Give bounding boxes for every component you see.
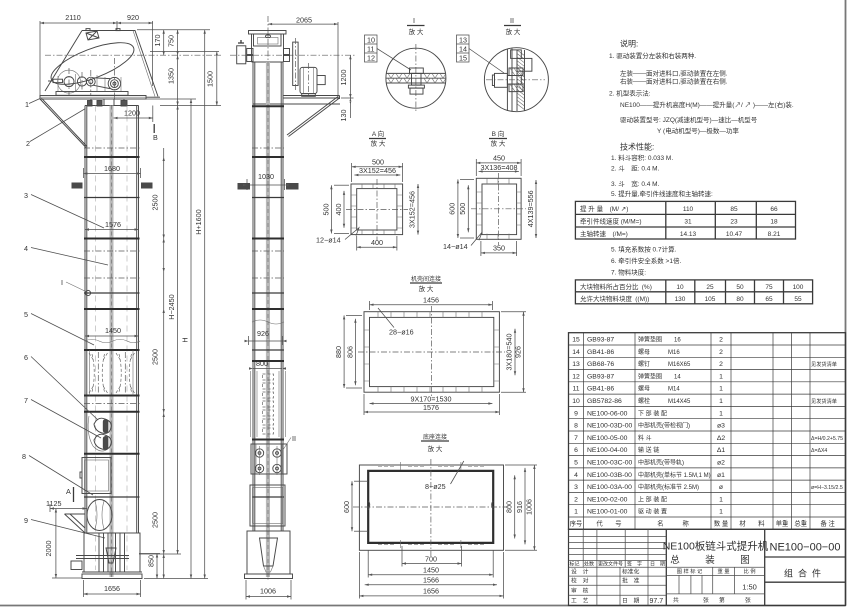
svg-text:Δ2: Δ2 [717,435,726,442]
svg-text:中部机壳(单标节 1.5M,1 M): 中部机壳(单标节 1.5M,1 M) [638,471,711,479]
svg-text:Δ=H/0.2+5.75: Δ=H/0.2+5.75 [811,436,843,442]
svg-text:11: 11 [367,45,374,54]
svg-text:1: 1 [719,509,723,516]
svg-text:H+1600: H+1600 [194,209,203,234]
svg-text:6: 6 [574,447,578,454]
svg-text:916: 916 [515,501,524,513]
svg-text:1. 驱动装置分左装和右装两种.: 1. 驱动装置分左装和右装两种. [609,51,696,60]
svg-text:NE100−00−00: NE100−00−00 [770,542,841,554]
svg-text:H−2450: H−2450 [167,294,176,319]
svg-text:8: 8 [574,423,578,430]
svg-text:GB41-86: GB41-86 [587,386,614,393]
svg-text:I: I [413,16,415,25]
svg-text:3. 斗 宽: 0.4 M.: 3. 斗 宽: 0.4 M. [611,179,660,188]
svg-text:II: II [292,434,296,443]
svg-text:NE100-03C-00: NE100-03C-00 [587,460,633,467]
svg-text:放 大: 放 大 [506,27,521,36]
svg-text:第: 第 [719,596,725,604]
svg-text:11: 11 [572,386,579,393]
svg-text:技术性能:: 技术性能: [620,142,654,152]
svg-text:1:50: 1:50 [742,583,757,592]
svg-text:总重: 总重 [794,519,807,528]
svg-text:55: 55 [794,296,802,303]
svg-text:左装——面对进料口,驱动装置在左侧.: 左装——面对进料口,驱动装置在左侧. [620,69,728,78]
svg-text:1566: 1566 [423,576,439,585]
svg-text:B 向: B 向 [492,129,505,138]
svg-text:10: 10 [676,284,684,291]
svg-text:张: 张 [745,596,751,604]
svg-text:2: 2 [719,349,723,356]
svg-text:见发货清单: 见发货清单 [811,360,837,368]
svg-text:输 送 链: 输 送 链 [638,446,659,454]
svg-text:NE100-05-00: NE100-05-00 [587,435,628,442]
svg-text:名 称: 名 称 [657,519,689,528]
svg-text:1200: 1200 [339,70,348,86]
svg-text:18: 18 [770,219,778,226]
svg-text:1576: 1576 [105,220,121,229]
svg-text:13: 13 [572,361,580,368]
svg-text:800: 800 [505,501,514,513]
svg-text:1: 1 [574,509,578,516]
svg-text:共: 共 [673,596,679,604]
svg-text:机壳间连接: 机壳间连接 [411,275,441,283]
svg-text:NE100-06-00: NE100-06-00 [587,410,628,417]
svg-text:放 大: 放 大 [428,444,443,453]
svg-text:签 字: 签 字 [627,561,642,568]
svg-text:螺栓 M14X45: 螺栓 M14X45 [638,397,691,405]
svg-text:弹簧垫圈 16: 弹簧垫圈 16 [638,336,681,344]
svg-text:I: I [61,278,63,287]
svg-text:85: 85 [730,206,738,213]
svg-text:25: 25 [706,284,714,291]
svg-text:850: 850 [147,555,156,567]
svg-text:105: 105 [705,296,716,303]
svg-text:926: 926 [257,329,269,338]
svg-text:料 斗: 料 斗 [638,434,652,442]
svg-text:图 样 标 记: 图 样 标 记 [677,567,703,575]
svg-text:97.7: 97.7 [650,598,664,605]
svg-text:3X180=540: 3X180=540 [505,334,514,371]
svg-text:GB5782-86: GB5782-86 [587,398,622,405]
svg-text:2. 斗 距: 0.4 M.: 2. 斗 距: 0.4 M. [611,164,660,172]
svg-text:审 核: 审 核 [571,587,589,595]
svg-text:A: A [66,487,71,496]
svg-text:2: 2 [26,139,30,148]
svg-text:450: 450 [493,154,505,163]
svg-text:5: 5 [574,460,578,467]
svg-text:880: 880 [334,346,343,358]
svg-text:350: 350 [493,244,505,253]
svg-text:6: 6 [24,353,28,362]
svg-text:5. 提升量,牵引件线速度和主轴转速:: 5. 提升量,牵引件线速度和主轴转速: [611,189,713,198]
svg-text:7: 7 [24,396,28,405]
svg-text:工 艺: 工 艺 [571,597,589,605]
svg-text:2: 2 [574,496,578,503]
svg-text:130: 130 [339,110,348,122]
svg-text:序号: 序号 [570,519,583,528]
svg-text:8: 8 [22,452,26,461]
svg-text:130: 130 [675,296,686,303]
svg-text:NE100-03A-00: NE100-03A-00 [587,484,632,491]
svg-text:数 量: 数 量 [714,519,729,528]
svg-text:中部机壳(标准节 2.5M): 中部机壳(标准节 2.5M) [638,483,699,491]
svg-text:1350: 1350 [167,68,176,84]
svg-text:3: 3 [574,484,578,491]
svg-text:B: B [153,133,158,142]
svg-text:400: 400 [371,238,383,247]
svg-text:3: 3 [24,191,28,200]
svg-text:31: 31 [684,219,692,226]
svg-text:1456: 1456 [423,295,439,304]
svg-text:螺钉 M16X65: 螺钉 M16X65 [638,360,691,368]
svg-text:500: 500 [458,203,467,215]
svg-text:14.13: 14.13 [680,231,697,238]
svg-text:1656: 1656 [423,587,439,596]
svg-text:3X152=456: 3X152=456 [408,191,417,228]
svg-text:806: 806 [345,346,354,358]
svg-text:100: 100 [793,284,804,291]
svg-text:5: 5 [24,310,28,319]
svg-text:NE100-04-00: NE100-04-00 [587,447,628,454]
svg-text:66: 66 [770,206,778,213]
svg-text:10: 10 [367,36,375,45]
svg-text:400: 400 [334,204,343,216]
svg-text:NE100-03B-00: NE100-03B-00 [587,472,632,479]
svg-text:7: 7 [574,435,578,442]
svg-text:1450: 1450 [105,326,121,335]
svg-text:重 量: 重 量 [717,567,730,575]
svg-text:ø2: ø2 [717,460,725,467]
svg-text:6. 牵引件安全系数 >1倍.: 6. 牵引件安全系数 >1倍. [611,256,681,265]
svg-text:1: 1 [25,100,29,109]
svg-text:1125: 1125 [46,499,61,508]
svg-text:驱动装置型号: JZQ(减速机型号)—速比—机型号: 驱动装置型号: JZQ(减速机型号)—速比—机型号 [620,115,758,124]
svg-text:14: 14 [572,349,580,356]
svg-text:更改文件号: 更改文件号 [598,561,623,568]
svg-text:代 号: 代 号 [596,519,621,528]
svg-text:700: 700 [425,554,437,563]
svg-text:NE100-02-00: NE100-02-00 [587,496,628,503]
svg-text:中部机壳(带导轨): 中部机壳(带导轨) [638,459,684,467]
svg-text:日 期: 日 期 [622,598,640,605]
svg-text:II: II [510,16,514,25]
svg-text:日 期: 日 期 [650,562,665,568]
svg-text:NE100板链斗式提升机: NE100板链斗式提升机 [663,540,769,553]
svg-text:ø1: ø1 [717,472,725,479]
svg-text:8−ø25: 8−ø25 [425,482,446,491]
svg-text:9: 9 [574,410,578,417]
svg-text:1006: 1006 [524,499,533,515]
svg-text:12: 12 [572,373,580,380]
svg-text:放 大: 放 大 [491,139,506,148]
svg-text:允许大块物料块度 ((M)): 允许大块物料块度 ((M)) [580,294,649,303]
svg-text:10.47: 10.47 [726,231,743,238]
svg-text:926: 926 [514,346,523,358]
svg-text:28−ø16: 28−ø16 [389,328,414,337]
svg-text:10: 10 [572,398,580,405]
svg-text:说明:: 说明: [620,39,638,49]
svg-text:驱 动 装 置: 驱 动 装 置 [638,508,667,516]
svg-text:1656: 1656 [104,584,120,593]
svg-text:GB41-86: GB41-86 [587,349,614,356]
svg-text:2: 2 [719,361,723,368]
svg-text:下 部 装 配: 下 部 装 配 [638,409,667,417]
svg-text:GB68-76: GB68-76 [587,361,614,368]
svg-text:1006: 1006 [260,587,276,596]
svg-text:920: 920 [127,13,139,22]
svg-text:A 向: A 向 [372,129,384,138]
svg-text:组合件: 组合件 [784,568,826,579]
svg-text:标准化: 标准化 [622,568,640,576]
svg-text:9: 9 [24,516,28,525]
svg-text:备 注: 备 注 [821,519,836,528]
svg-text:放 大: 放 大 [419,284,434,293]
svg-text:提 升 量 (M/ ↗): 提 升 量 (M/ ↗) [580,204,628,213]
svg-text:1: 1 [719,410,723,417]
svg-text:500: 500 [372,158,384,167]
svg-text:1450: 1450 [423,566,439,575]
svg-text:处数: 处数 [584,561,594,568]
svg-text:单重: 单重 [776,519,789,528]
svg-text:1: 1 [719,496,723,503]
svg-text:ø: ø [719,484,723,491]
svg-text:ø3: ø3 [717,423,725,430]
svg-text:15: 15 [459,54,467,63]
svg-text:放 大: 放 大 [409,27,424,36]
svg-text:1030: 1030 [258,172,274,181]
svg-text:12−ø14: 12−ø14 [316,236,341,245]
svg-text:张: 张 [703,596,709,604]
svg-text:标记: 标记 [570,561,580,568]
svg-text:右装——面对进料口,驱动装置在右侧.: 右装——面对进料口,驱动装置在右侧. [620,76,728,85]
svg-text:14−ø14: 14−ø14 [443,242,468,251]
svg-text:Δ=ΔX4: Δ=ΔX4 [811,448,827,454]
svg-text:底座连接: 底座连接 [423,433,447,441]
svg-text:Δ1: Δ1 [717,447,726,454]
svg-text:1576: 1576 [423,403,439,412]
svg-text:2065: 2065 [296,16,312,25]
svg-text:上 部 装 配: 上 部 装 配 [638,495,667,503]
svg-text:材 料: 材 料 [739,519,765,528]
svg-text:600: 600 [342,501,351,513]
svg-text:Y (电动机型号)—极数—功率: Y (电动机型号)—极数—功率 [657,126,739,135]
svg-text:1680: 1680 [104,164,120,173]
svg-text:螺母 M16: 螺母 M16 [638,348,680,356]
svg-text:2500: 2500 [151,512,160,528]
svg-text:14: 14 [459,45,467,54]
svg-text:1500: 1500 [206,71,215,87]
svg-text:2110: 2110 [65,13,80,22]
svg-text:主轴转速 (/M=): 主轴转速 (/M=) [580,229,628,238]
svg-text:65: 65 [765,296,773,303]
svg-text:NE100-01-00: NE100-01-00 [587,509,628,516]
svg-text:2500: 2500 [151,195,160,211]
svg-text:1200: 1200 [124,109,140,118]
svg-text:1: 1 [719,373,723,380]
svg-text:170: 170 [153,35,162,47]
svg-text:放 大: 放 大 [371,139,386,148]
svg-text:80: 80 [736,296,744,303]
svg-text:50: 50 [736,284,744,291]
svg-text:牵引件线速度 (M/M=): 牵引件线速度 (M/M=) [580,217,642,226]
svg-text:3X136=408: 3X136=408 [481,163,518,172]
svg-text:2500: 2500 [151,349,160,365]
svg-text:设 计: 设 计 [571,568,589,576]
svg-text:800: 800 [256,359,268,368]
svg-text:2: 2 [719,337,723,344]
svg-text:见发货清单: 见发货清单 [811,397,837,405]
svg-text:15: 15 [572,337,580,344]
svg-text:5. 填充系数按 0.7计算.: 5. 填充系数按 0.7计算. [611,245,677,254]
svg-text:ø=H−3.15/2.5: ø=H−3.15/2.5 [811,485,843,491]
svg-text:3X152=456: 3X152=456 [359,166,396,175]
svg-text:4: 4 [574,472,578,479]
svg-text:批 准: 批 准 [622,577,640,585]
svg-text:GB93-87: GB93-87 [587,337,614,344]
svg-text:2000: 2000 [44,541,53,557]
svg-text:总 装 图: 总 装 图 [670,554,758,566]
svg-text:1. 料斗容积: 0.033 M.: 1. 料斗容积: 0.033 M. [611,153,673,162]
svg-text:500: 500 [322,204,331,216]
svg-text:23: 23 [730,219,738,226]
svg-text:NE100——提升机高度H(M)——提升量(↗/ ↗ )——: NE100——提升机高度H(M)——提升量(↗/ ↗ )——左(右)装. [620,100,794,109]
svg-text:弹簧垫圈 14: 弹簧垫圈 14 [638,372,681,380]
svg-text:8.21: 8.21 [768,231,781,238]
svg-text:600: 600 [448,203,457,215]
svg-text:GB93-87: GB93-87 [587,373,614,380]
svg-text:大块物料所占百分比 (%): 大块物料所占百分比 (%) [580,282,652,291]
svg-text:比 例: 比 例 [743,567,755,575]
svg-text:H: H [181,337,190,342]
svg-text:7. 物料块度:: 7. 物料块度: [611,267,646,276]
svg-text:1: 1 [719,398,723,405]
svg-text:750: 750 [167,35,176,47]
svg-text:110: 110 [683,206,694,213]
svg-text:2. 机型表示法:: 2. 机型表示法: [609,88,651,97]
svg-text:13: 13 [459,36,467,45]
svg-text:1: 1 [719,386,723,393]
svg-text:校 对: 校 对 [571,577,589,585]
svg-text:75: 75 [765,284,773,291]
svg-text:NE100-03D-00: NE100-03D-00 [587,423,633,430]
svg-text:螺母 M14: 螺母 M14 [638,385,680,393]
svg-text:4X139=556: 4X139=556 [526,190,535,227]
svg-text:中部机壳(带检视门): 中部机壳(带检视门) [638,422,690,430]
svg-text:12: 12 [367,54,375,63]
svg-text:4: 4 [24,244,28,253]
